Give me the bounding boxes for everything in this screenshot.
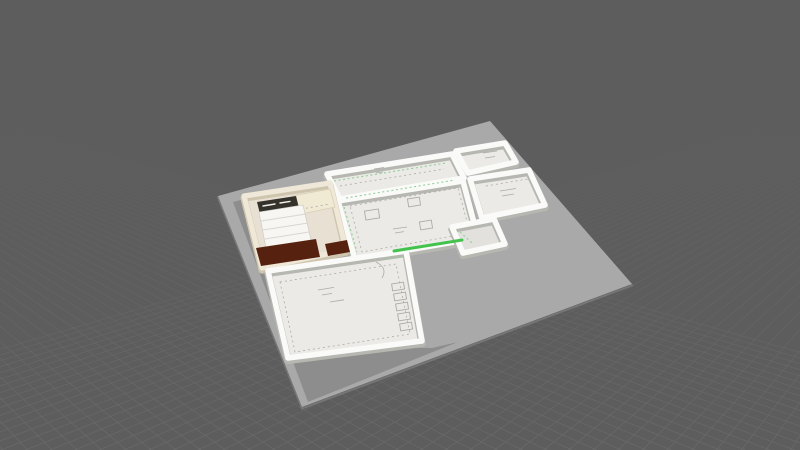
viewport-3d[interactable] [0, 0, 800, 450]
room-protrusion[interactable] [452, 219, 505, 255]
room-bedroom[interactable] [244, 183, 350, 270]
design-canvas[interactable] [0, 0, 800, 450]
room-bottom[interactable] [268, 251, 422, 360]
room-east[interactable] [470, 170, 545, 220]
